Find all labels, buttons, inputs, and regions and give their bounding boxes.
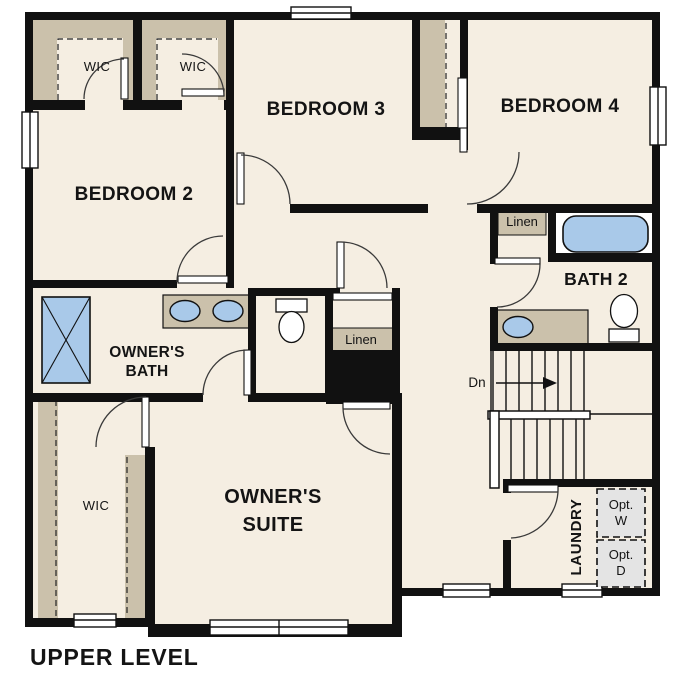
door-laundry xyxy=(508,485,558,492)
label-linen-mid: Linen xyxy=(345,333,377,347)
label-laundry: LAUNDRY xyxy=(569,499,585,576)
label-wic2: WIC xyxy=(180,60,206,74)
door-wic2 xyxy=(182,89,224,96)
label-bath2: BATH 2 xyxy=(564,270,628,288)
label-linen-top: Linen xyxy=(506,215,538,229)
double-vanity xyxy=(163,295,255,328)
label-bedroom4: BEDROOM 4 xyxy=(501,97,620,117)
door-owners-suite xyxy=(343,402,390,409)
door-owner-wic xyxy=(142,397,149,447)
label-owners-bath: OWNER'S BATH xyxy=(109,343,185,381)
label-stairs-down: Dn xyxy=(468,376,485,390)
window-hall-bottom xyxy=(443,584,490,597)
door-bath2 xyxy=(495,258,540,264)
window-laundry-bottom xyxy=(562,584,602,597)
label-opt-washer: Opt. W xyxy=(609,497,634,529)
opening-bedroom3-closet xyxy=(458,78,467,128)
door-bedroom2 xyxy=(178,276,228,283)
window-bedroom3-top xyxy=(291,7,351,19)
toilet-owner xyxy=(276,299,307,343)
door-bedroom3 xyxy=(237,153,244,204)
vanity-bath2 xyxy=(497,310,588,345)
opening-linen xyxy=(333,293,392,300)
sink xyxy=(503,317,533,338)
stair-railing xyxy=(488,411,590,419)
label-opt-dryer: Opt. D xyxy=(609,547,634,579)
window-owners-suite xyxy=(210,620,348,635)
stair-railing-return xyxy=(490,411,499,488)
sink xyxy=(170,301,200,322)
window-wic-bottom xyxy=(74,614,116,627)
label-bedroom3: BEDROOM 3 xyxy=(267,100,386,120)
floor-plan-page: BEDROOM 2 BEDROOM 3 BEDROOM 4 WIC WIC Li… xyxy=(0,0,687,687)
label-owners-suite: OWNER'S SUITE xyxy=(224,483,322,539)
toilet-bath2 xyxy=(609,295,639,343)
label-bedroom2: BEDROOM 2 xyxy=(75,185,194,205)
sink xyxy=(213,301,243,322)
bathtub xyxy=(563,216,648,252)
door-hall-vestibule xyxy=(337,242,344,288)
window-bedroom4-right xyxy=(650,87,666,145)
label-owner-wic: WIC xyxy=(83,499,109,513)
chase xyxy=(326,350,400,404)
door-wic1 xyxy=(121,58,128,99)
label-wic1: WIC xyxy=(84,60,110,74)
shower xyxy=(42,297,90,383)
door-owners-bath xyxy=(244,350,251,395)
plan-title: UPPER LEVEL xyxy=(30,644,199,671)
window-bedroom2-left xyxy=(22,112,38,168)
